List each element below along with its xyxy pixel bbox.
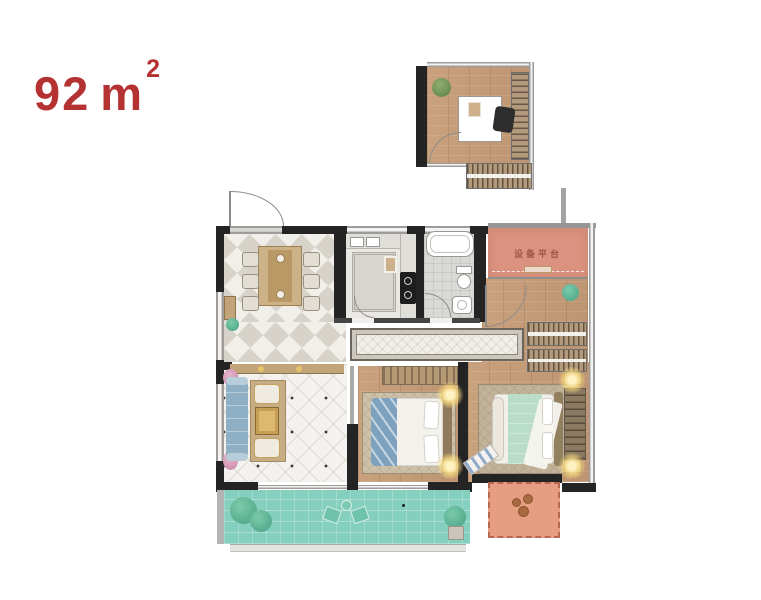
- balcony-plant-2: [250, 510, 272, 532]
- wall-dining-kitchen: [334, 230, 346, 322]
- wall-living-bedroom: [347, 424, 358, 490]
- dining-side-cabinet: [224, 296, 236, 320]
- small-balcony-pot-2: [523, 494, 533, 504]
- hall-plant: [562, 284, 579, 301]
- hall-bookshelf-1: [527, 322, 587, 346]
- bath-sink-basin: [457, 300, 467, 310]
- bathtub-inner: [430, 235, 470, 253]
- dining-candle-2: [276, 290, 285, 299]
- right-bedroom-wardrobe: [564, 388, 586, 460]
- kitchen-sink-basin-1: [350, 237, 364, 247]
- sofa-armrest-top: [226, 377, 248, 385]
- dining-chair: [303, 252, 320, 267]
- balcony-table: [341, 500, 352, 511]
- cooktop-burner-2: [404, 291, 412, 299]
- middle-lamp-glow-1: [436, 381, 464, 409]
- left-wall-1: [216, 226, 224, 292]
- middle-lamp-glow-2: [436, 452, 464, 480]
- right-lamp-glow-2: [558, 452, 586, 480]
- main-balcony-ledge: [230, 544, 466, 552]
- main-balcony-left-edge: [217, 490, 224, 544]
- bath-door-gap: [430, 318, 452, 323]
- corridor-rug-inner: [356, 334, 518, 355]
- bottom-wall-4: [562, 483, 596, 492]
- right-wall-window: [589, 223, 595, 492]
- dining-candle-1: [276, 254, 285, 263]
- study-connector-wall: [561, 188, 566, 226]
- sofa-armrest-bottom: [226, 453, 248, 461]
- study-chair: [492, 106, 515, 134]
- small-balcony-pot-1: [512, 498, 521, 507]
- living-console: [230, 364, 344, 374]
- living-console-deco: [258, 366, 264, 372]
- balcony-dot: [402, 504, 405, 507]
- middle-bed-pillow-1: [423, 401, 439, 430]
- living-console-deco: [296, 366, 302, 372]
- equipment-platform-slot: [524, 266, 552, 273]
- study-bottom-cabinet: [466, 163, 532, 189]
- study-bottom-wall: [427, 163, 467, 167]
- area-label: 92m2: [34, 70, 160, 117]
- dining-plant: [226, 318, 239, 331]
- right-lamp-glow-1: [558, 366, 586, 394]
- middle-bed-blue-throw: [371, 398, 397, 466]
- equipment-platform-top-edge: [488, 223, 596, 228]
- entry-threshold: [230, 228, 282, 231]
- armchair-2: [254, 438, 280, 458]
- dining-chair: [242, 296, 259, 311]
- toilet-tank: [456, 266, 472, 274]
- corridor-floor: [224, 322, 346, 362]
- kitchen-art-board: [384, 256, 397, 273]
- toilet-bowl: [457, 274, 471, 289]
- dining-chair: [242, 252, 259, 267]
- right-bed-pillow-1: [542, 398, 553, 425]
- wall-living-bedroom-slider: [350, 366, 354, 424]
- floorplan-page: 92m2 设备平台: [0, 0, 761, 600]
- study-desk-papers: [468, 102, 481, 117]
- dining-chair: [242, 274, 259, 289]
- wall-kitchen-bath: [416, 230, 424, 318]
- area-exponent: 2: [146, 55, 162, 83]
- armchair-1: [254, 384, 280, 404]
- hall-door-leaf: [485, 285, 487, 327]
- dining-chair: [303, 274, 320, 289]
- equipment-platform-label: 设备平台: [514, 247, 562, 260]
- area-value: 92: [34, 67, 90, 120]
- study-left-wall: [416, 66, 427, 167]
- cooktop-burner-1: [404, 277, 412, 285]
- study-top-wall: [427, 62, 534, 67]
- balcony-plant-3: [444, 506, 466, 528]
- right-bed-pillow-2: [542, 432, 553, 459]
- coffee-table-top: [259, 411, 275, 431]
- entry-door-leaf: [229, 191, 231, 226]
- area-unit: m: [100, 67, 144, 120]
- balcony-slider: [258, 485, 428, 489]
- dining-chair: [303, 296, 320, 311]
- kitchen-door-gap: [352, 318, 374, 323]
- balcony-plant-pot: [448, 526, 464, 540]
- study-plant: [432, 78, 451, 97]
- sofa: [226, 380, 248, 458]
- small-balcony-pot-3: [518, 506, 529, 517]
- entry-door-arc: [230, 191, 284, 226]
- kitchen-sink-basin-2: [366, 237, 380, 247]
- equipment-platform-bottom-line: [488, 277, 588, 279]
